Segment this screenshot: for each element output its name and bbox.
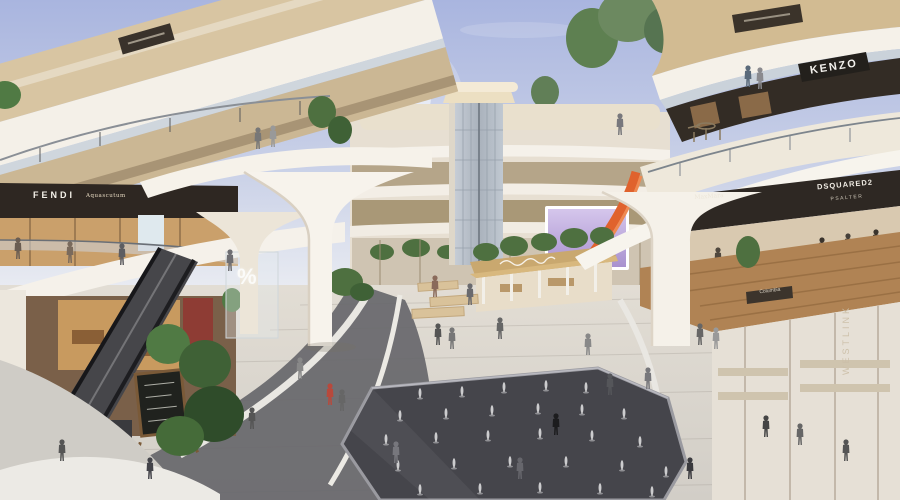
right-plant: [736, 236, 760, 268]
scene-canvas: [0, 0, 900, 500]
right-ground-storefront[interactable]: [712, 302, 900, 500]
fountain-plaza: [342, 368, 686, 500]
mall-atrium-scene: FENDI Aquascutum KENZO MaxMara DSQUARED2…: [0, 0, 900, 500]
